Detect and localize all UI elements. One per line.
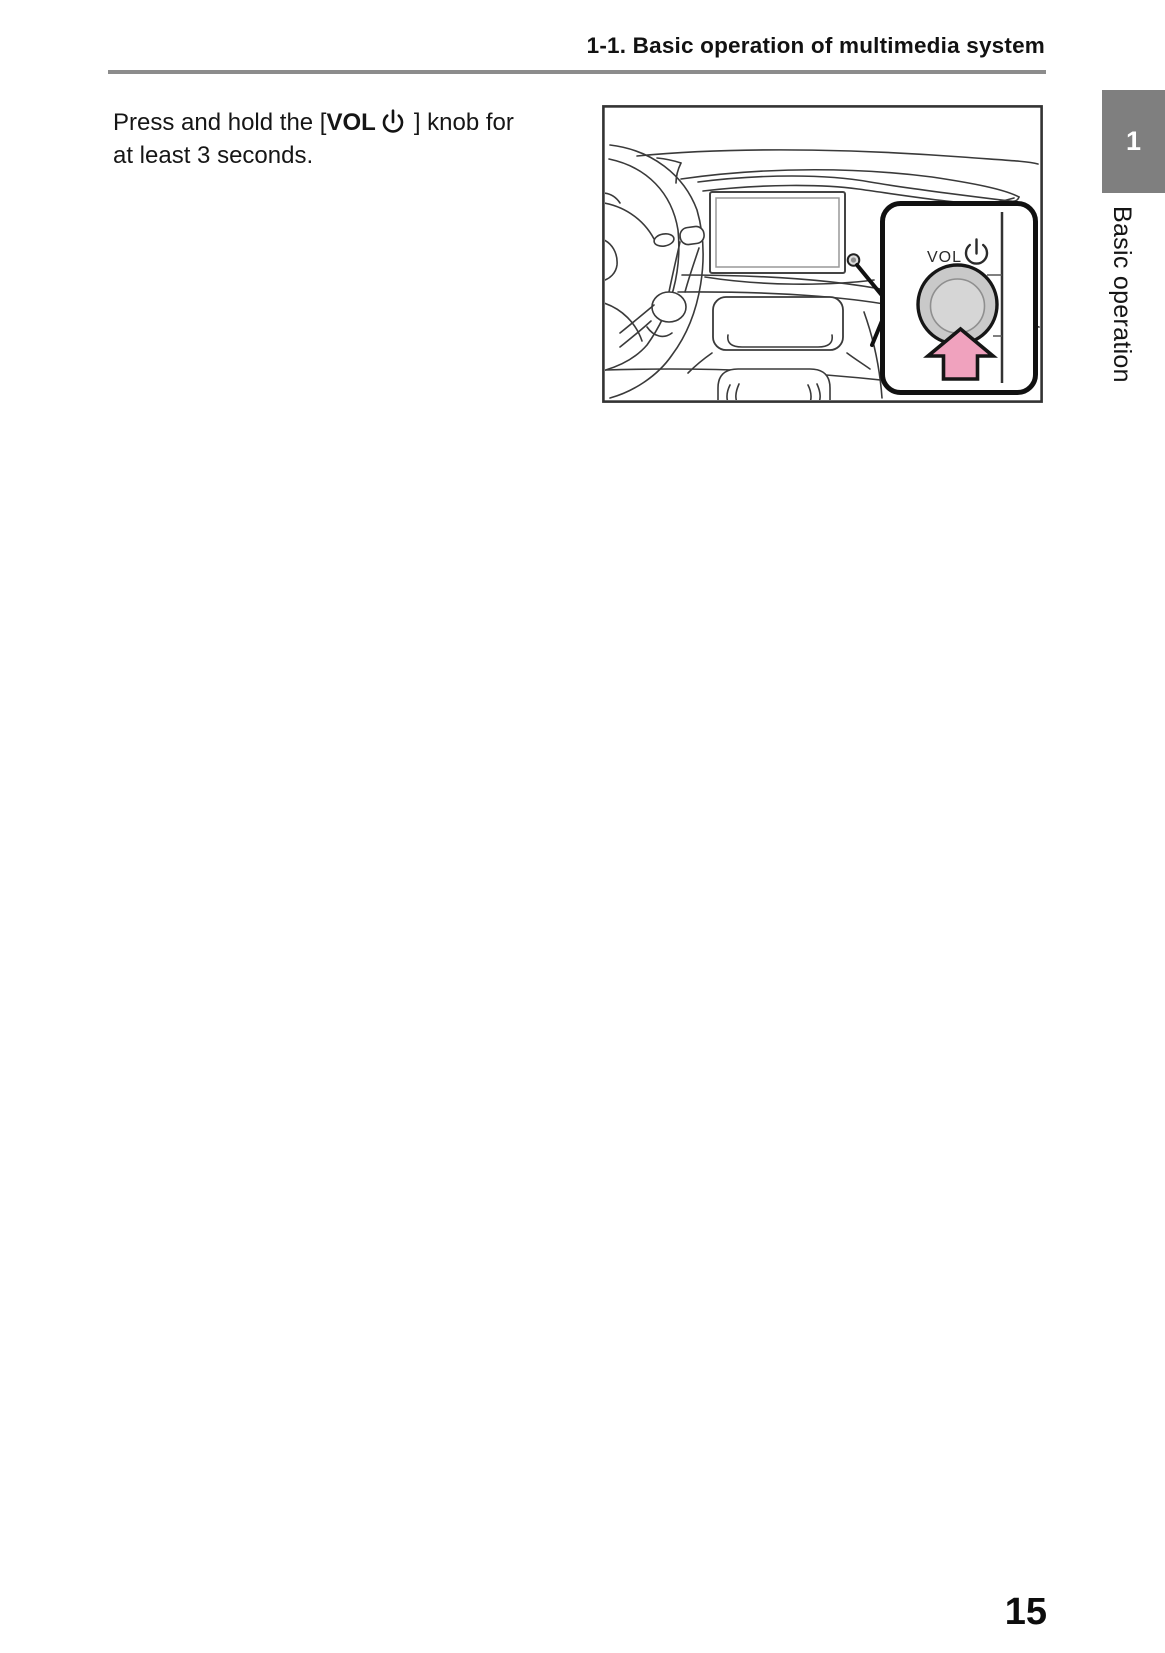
- chapter-number: 1: [1126, 126, 1141, 157]
- dashboard-illustration: VOL: [602, 105, 1043, 403]
- instruction-line1-prefix: Press and hold the [: [113, 109, 326, 136]
- vol-knob-label: VOL: [326, 109, 375, 136]
- callout-box: VOL: [883, 204, 1036, 393]
- header-divider: [108, 70, 1046, 74]
- chapter-tab: 1: [1102, 90, 1165, 193]
- section-title: 1-1. Basic operation of multimedia syste…: [587, 33, 1045, 59]
- display-screen: [710, 192, 845, 273]
- instruction-line1-suffix: ] knob for: [414, 109, 514, 136]
- instruction-paragraph: Press and hold the [VOL ] knob for at le…: [113, 106, 583, 172]
- chapter-side-label: Basic operation: [1107, 206, 1136, 383]
- seat: [718, 369, 830, 403]
- instruction-line2: at least 3 seconds.: [113, 139, 583, 172]
- instruction-line1: Press and hold the [VOL ] knob for: [113, 106, 583, 139]
- power-icon: [381, 107, 405, 134]
- figure-dashboard: VOL: [602, 105, 1043, 403]
- page-number: 15: [1005, 1591, 1047, 1634]
